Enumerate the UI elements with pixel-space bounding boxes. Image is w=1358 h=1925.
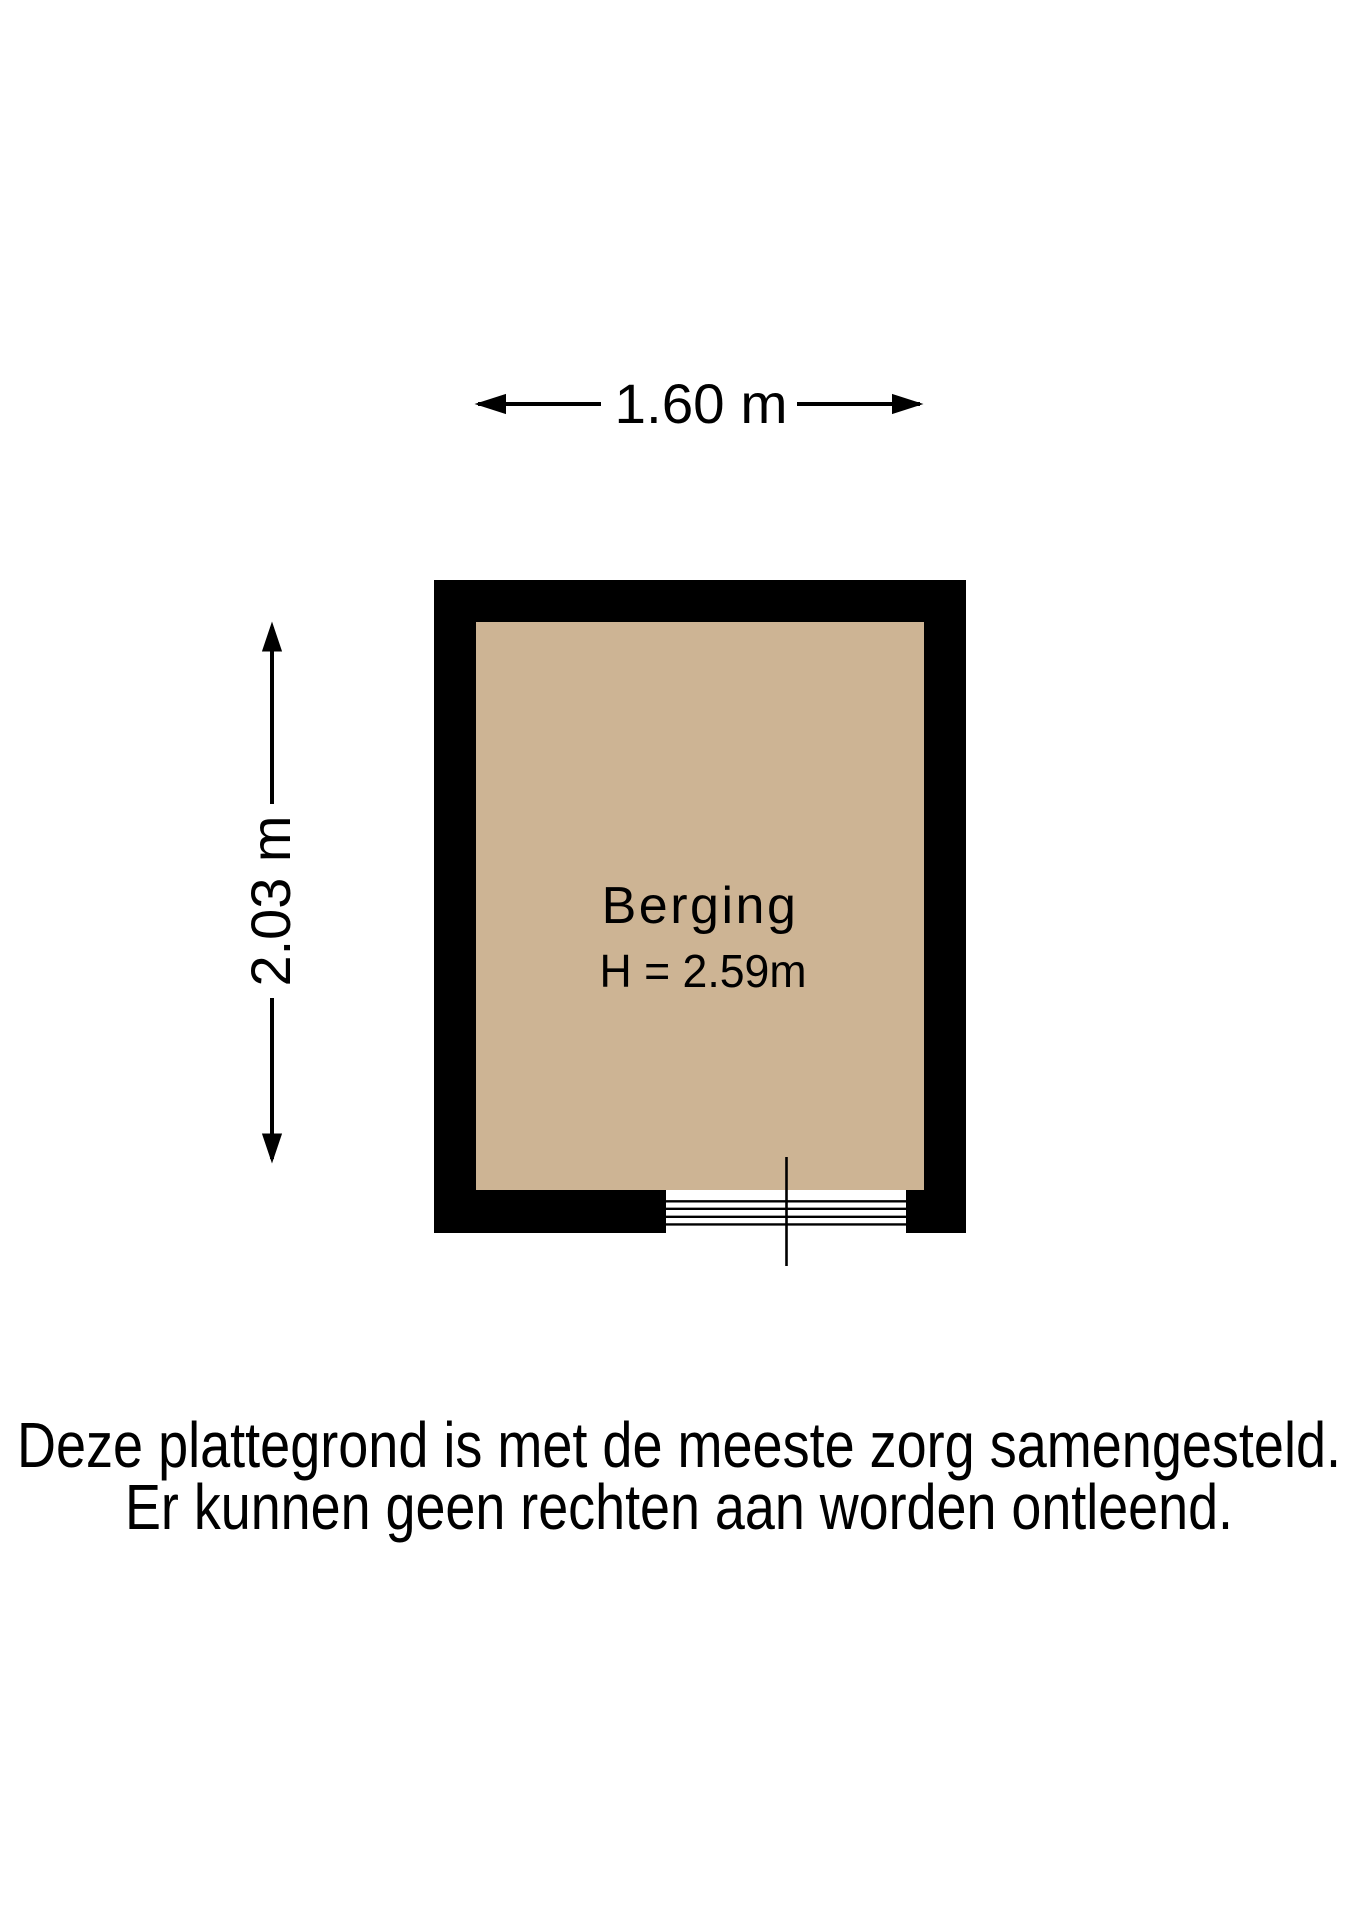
svg-text:H = 2.59m: H = 2.59m (600, 945, 807, 997)
svg-text:Er kunnen geen rechten aan wor: Er kunnen geen rechten aan worden ontlee… (125, 1471, 1233, 1543)
svg-text:1.60 m: 1.60 m (615, 372, 788, 435)
svg-text:2.03 m: 2.03 m (239, 816, 302, 987)
svg-text:Berging: Berging (602, 877, 799, 935)
